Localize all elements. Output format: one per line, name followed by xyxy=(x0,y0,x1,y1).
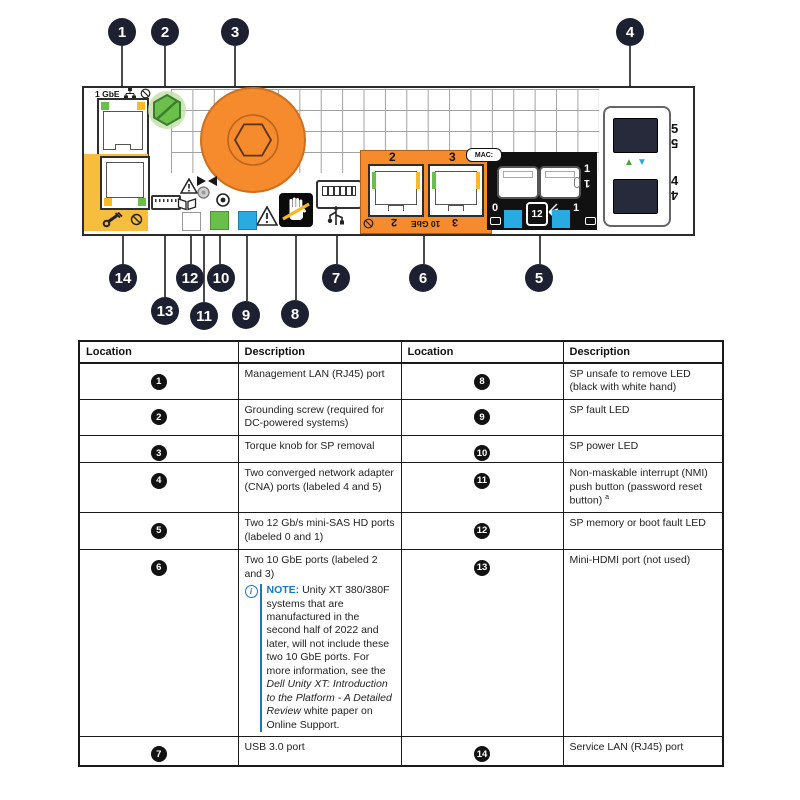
nmi-push-button xyxy=(197,186,210,199)
link-led-yellow xyxy=(416,172,420,189)
description-text: Non-maskable interrupt (NMI) push button… xyxy=(570,467,708,506)
cna-label-4: 4 xyxy=(671,173,678,188)
location-badge: 12 xyxy=(474,523,490,539)
table-row: 1 Management LAN (RJ45) port 8 SP unsafe… xyxy=(79,363,723,399)
port-opening xyxy=(435,171,477,205)
sas-speed-label: 12 xyxy=(531,209,542,220)
sas-port1-label: 1 xyxy=(573,202,579,214)
description-cell: Two 12 Gb/s mini-SAS HD ports (labeled 0… xyxy=(238,513,401,550)
unsafe-remove-hand-icon xyxy=(279,193,313,227)
port-notch xyxy=(115,144,131,150)
sas-mini-icon xyxy=(585,217,596,225)
note-text: Unity XT 380/380F systems that are manuf… xyxy=(267,584,390,677)
sas-side-label-1-inv: 1 xyxy=(584,177,590,189)
description-cell: USB 3.0 port xyxy=(238,736,401,766)
callout-5: 5 xyxy=(525,264,553,292)
service-green-led xyxy=(138,198,146,206)
description-cell: Management LAN (RJ45) port xyxy=(238,363,401,399)
callout-2: 2 xyxy=(151,18,179,46)
callout-6: 6 xyxy=(409,264,437,292)
description-text: SP power LED xyxy=(570,440,639,452)
table-row: 6 Two 10 GbE ports (labeled 2 and 3) i N… xyxy=(79,550,723,737)
port2-bottom-label: 2 xyxy=(391,216,397,228)
warning-triangle-icon xyxy=(256,206,278,226)
description-cell: Service LAN (RJ45) port xyxy=(563,736,723,766)
page: 1 2 3 4 14 13 12 11 10 9 8 7 6 5 1 GbE xyxy=(0,0,800,800)
manual-book-icon xyxy=(177,196,197,211)
callout-8: 8 xyxy=(281,300,309,328)
location-badge: 14 xyxy=(474,746,490,762)
sas-mini-icon xyxy=(490,217,501,225)
description-text: USB 3.0 port xyxy=(245,741,305,753)
col-header-description-1: Description xyxy=(238,341,401,363)
description-cell: Grounding screw (required for DC-powered… xyxy=(238,399,401,435)
cna-port-4 xyxy=(613,179,658,214)
sas-opening xyxy=(545,171,575,178)
callout-14: 14 xyxy=(109,264,137,292)
service-yellow-led xyxy=(104,198,112,206)
table-row: 3 Torque knob for SP removal 10 SP power… xyxy=(79,435,723,463)
col-header-location-1: Location xyxy=(79,341,238,363)
mgmt-green-led xyxy=(101,102,109,110)
description-text: Grounding screw (required for DC-powered… xyxy=(245,404,384,429)
sas-side-label-1: 1 xyxy=(584,163,590,175)
port3-bottom-label: 3 xyxy=(452,216,458,228)
port2-label: 2 xyxy=(389,150,396,164)
port-opening xyxy=(375,171,417,205)
power-symbol-icon xyxy=(215,192,231,208)
location-badge: 2 xyxy=(151,409,167,425)
link-led-yellow xyxy=(476,172,480,189)
memory-fault-led xyxy=(182,212,201,231)
leader-line-1 xyxy=(121,46,123,88)
callout-1: 1 xyxy=(108,18,136,46)
ten-gbe-port-2 xyxy=(368,164,424,217)
management-lan-port xyxy=(97,98,149,156)
info-icon: i xyxy=(245,585,258,598)
location-badge: 13 xyxy=(474,560,490,576)
callout-4: 4 xyxy=(616,18,644,46)
note-block: i NOTE: Unity XT 380/380F systems that a… xyxy=(245,584,395,732)
sas-opening xyxy=(503,171,533,178)
grounding-screw xyxy=(146,89,188,131)
description-text: Two 12 Gb/s mini-SAS HD ports (labeled 0… xyxy=(245,517,395,542)
description-cell: Two 10 GbE ports (labeled 2 and 3) i NOT… xyxy=(238,550,401,737)
mgmt-yellow-led xyxy=(137,102,145,110)
description-text: Service LAN (RJ45) port xyxy=(570,741,684,753)
description-text: Mini-HDMI port (not used) xyxy=(570,554,691,566)
link-led-green xyxy=(432,172,436,189)
callout-10: 10 xyxy=(207,264,235,292)
port3-label: 3 xyxy=(449,150,456,164)
callout-13: 13 xyxy=(151,297,179,325)
callout-11: 11 xyxy=(190,302,218,330)
location-badge: 10 xyxy=(474,445,490,461)
sas-port-1 xyxy=(539,166,581,199)
usb-pins xyxy=(322,186,356,196)
wrench-icon xyxy=(102,212,124,228)
port-notch xyxy=(448,205,464,211)
sas-port0-label: 0 xyxy=(492,202,498,214)
callout-12: 12 xyxy=(176,264,204,292)
table-row: 2 Grounding screw (required for DC-power… xyxy=(79,399,723,435)
description-cell: Non-maskable interrupt (NMI) push button… xyxy=(563,463,723,513)
callout-9: 9 xyxy=(232,301,260,329)
description-cell: SP fault LED xyxy=(563,399,723,435)
location-badge: 11 xyxy=(474,473,490,489)
footnote-marker: a xyxy=(605,494,609,501)
description-cell: SP power LED xyxy=(563,435,723,463)
fault-led xyxy=(238,211,257,230)
location-badge: 6 xyxy=(151,560,167,576)
description-text: Two 10 GbE ports (labeled 2 and 3) xyxy=(245,554,395,581)
cna-label-4-inv: 4 xyxy=(671,188,678,203)
callout-3: 3 xyxy=(221,18,249,46)
note-body: NOTE: Unity XT 380/380F systems that are… xyxy=(260,584,395,732)
up-triangle-icon: ▲ xyxy=(624,157,634,168)
power-led xyxy=(210,211,229,230)
location-badge: 8 xyxy=(474,374,490,390)
table-row: 7 USB 3.0 port 14 Service LAN (RJ45) por… xyxy=(79,736,723,766)
description-text: Management LAN (RJ45) port xyxy=(245,368,385,380)
description-cell: Two converged network adapter (CNA) port… xyxy=(238,463,401,513)
location-badge: 4 xyxy=(151,473,167,489)
col-header-description-2: Description xyxy=(563,341,723,363)
note-label: NOTE: xyxy=(267,584,300,596)
description-cell: Torque knob for SP removal xyxy=(238,435,401,463)
mac-label: MAC: xyxy=(475,152,493,159)
sas-led-1 xyxy=(552,210,570,228)
location-badge: 1 xyxy=(151,374,167,390)
description-text: Two converged network adapter (CNA) port… xyxy=(245,467,394,492)
sas-port-0 xyxy=(497,166,539,199)
cna-label-5: 5 xyxy=(671,121,678,136)
header-row: Location Description Location Descriptio… xyxy=(79,341,723,363)
port-notch xyxy=(388,205,404,211)
description-text: SP unsafe to remove LED (black with whit… xyxy=(570,368,691,393)
location-badge: 7 xyxy=(151,746,167,762)
hdmi-pins xyxy=(155,199,177,202)
cna-port-5 xyxy=(613,118,658,153)
sas-led-0 xyxy=(504,210,522,228)
description-cell: SP unsafe to remove LED (black with whit… xyxy=(563,363,723,399)
description-text: SP memory or boot fault LED xyxy=(570,517,706,529)
description-text: SP fault LED xyxy=(570,404,630,416)
callout-7: 7 xyxy=(322,264,350,292)
location-badge: 3 xyxy=(151,445,167,461)
description-text: Torque knob for SP removal xyxy=(245,440,375,452)
table-row: 4 Two converged network adapter (CNA) po… xyxy=(79,463,723,513)
ten-gbe-label: 10 GbE xyxy=(411,219,440,229)
leader-line-8 xyxy=(295,225,297,300)
col-header-location-2: Location xyxy=(401,341,563,363)
leader-line-9 xyxy=(246,226,248,301)
cna-label-5-inv: 5 xyxy=(671,136,678,151)
leader-line-3 xyxy=(234,46,236,88)
location-badge: 5 xyxy=(151,523,167,539)
description-cell: Mini-HDMI port (not used) xyxy=(563,550,723,737)
mgmt-speed-label: 1 GbE xyxy=(95,89,120,99)
location-table: Location Description Location Descriptio… xyxy=(78,340,724,767)
table-row: 5 Two 12 Gb/s mini-SAS HD ports (labeled… xyxy=(79,513,723,550)
link-led-green xyxy=(372,172,376,189)
no-symbol-icon xyxy=(363,218,374,229)
sas-tab xyxy=(574,177,580,188)
no-symbol-icon xyxy=(130,213,143,226)
usb-icon xyxy=(325,205,347,227)
ten-gbe-port-3 xyxy=(428,164,484,217)
location-badge: 9 xyxy=(474,409,490,425)
down-triangle-icon: ▼ xyxy=(637,157,647,168)
service-lan-port xyxy=(100,156,150,210)
description-cell: SP memory or boot fault LED xyxy=(563,513,723,550)
port-opening xyxy=(106,162,144,198)
